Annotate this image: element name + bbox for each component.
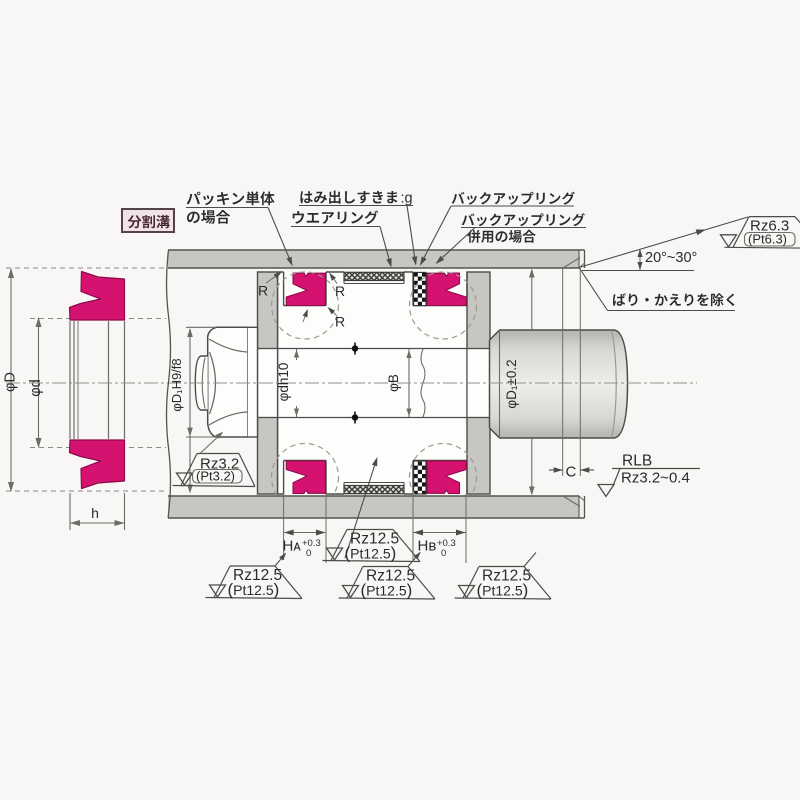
svg-text:(Pt12.5): (Pt12.5): [361, 581, 413, 600]
svg-text:φD₁H9/f8: φD₁H9/f8: [169, 358, 184, 411]
svg-text:RLB: RLB: [622, 453, 652, 470]
svg-text:Rz3.2~0.4: Rz3.2~0.4: [621, 470, 690, 487]
svg-text:φD: φD: [3, 372, 19, 392]
svg-text:C: C: [566, 464, 577, 481]
svg-text:R: R: [335, 314, 345, 330]
svg-text:φB: φB: [386, 374, 401, 392]
svg-text:0: 0: [306, 548, 311, 559]
svg-text:(Pt12.5): (Pt12.5): [228, 580, 280, 599]
svg-text:0: 0: [441, 548, 446, 559]
svg-text:(Pt6.3): (Pt6.3): [748, 232, 787, 247]
svg-text:(Pt12.5): (Pt12.5): [345, 544, 397, 563]
svg-text:20°~30°: 20°~30°: [645, 250, 697, 266]
svg-text:φD₁±0.2: φD₁±0.2: [504, 359, 519, 408]
svg-text:+0.3: +0.3: [437, 538, 456, 549]
svg-text:(Pt12.5): (Pt12.5): [477, 581, 529, 600]
svg-text:h: h: [91, 505, 99, 521]
svg-text:(Pt3.2): (Pt3.2): [196, 469, 235, 484]
svg-text:R: R: [335, 283, 345, 299]
svg-text::g: :g: [401, 191, 413, 207]
svg-text:φdh10: φdh10: [276, 363, 291, 402]
svg-text:Hᴀ: Hᴀ: [283, 538, 302, 555]
svg-text:+0.3: +0.3: [302, 538, 321, 549]
svg-text:φd: φd: [28, 379, 44, 396]
svg-text:R: R: [258, 283, 268, 299]
